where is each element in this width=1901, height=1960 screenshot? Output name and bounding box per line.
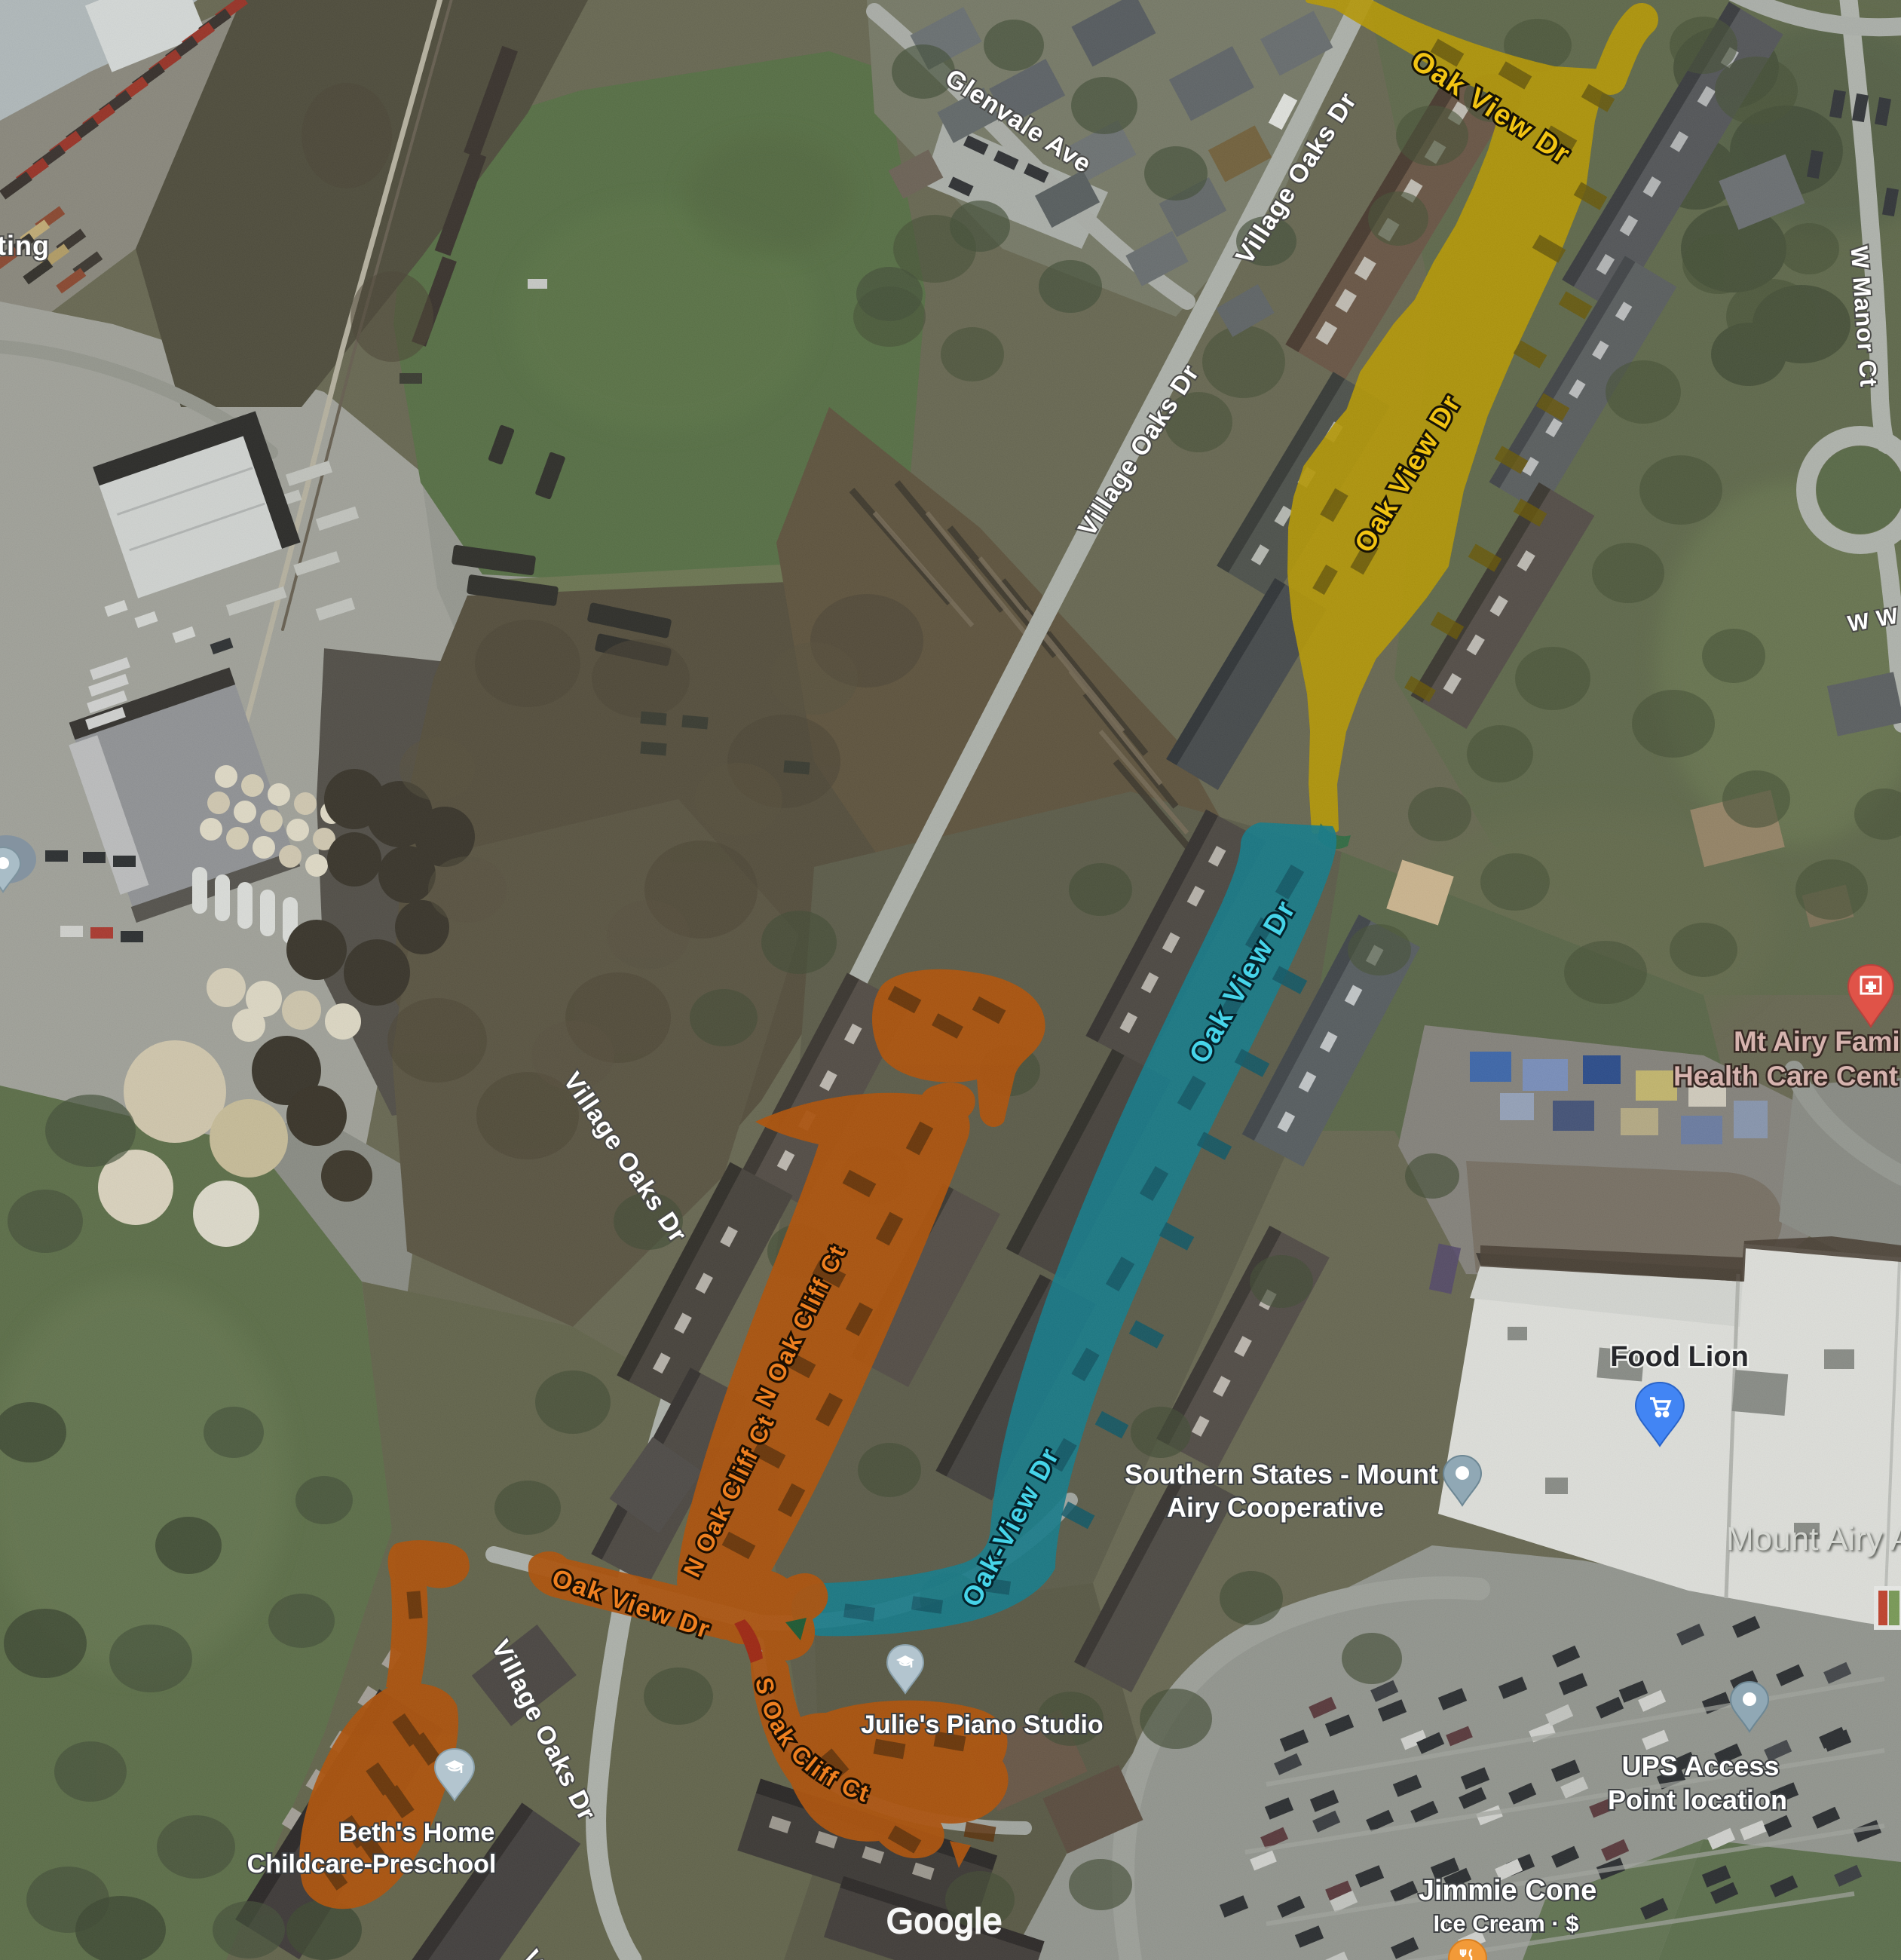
- svg-text:Mount Airy Ac: Mount Airy Ac: [1726, 1521, 1901, 1557]
- svg-text:Southern States - Mount: Southern States - Mount: [1125, 1459, 1438, 1490]
- svg-text:Beth's Home: Beth's Home: [339, 1818, 494, 1847]
- svg-text:ting: ting: [0, 230, 50, 261]
- svg-text:Airy Cooperative: Airy Cooperative: [1167, 1492, 1384, 1523]
- svg-text:Jimmie Cone: Jimmie Cone: [1419, 1875, 1597, 1906]
- svg-text:Ice Cream · $: Ice Cream · $: [1434, 1910, 1579, 1937]
- svg-text:Health Care Cent: Health Care Cent: [1673, 1061, 1898, 1092]
- svg-text:Childcare-Preschool: Childcare-Preschool: [247, 1850, 497, 1879]
- svg-text:Food Lion: Food Lion: [1610, 1341, 1749, 1373]
- svg-text:Google: Google: [886, 1901, 1003, 1940]
- svg-text:Julie's Piano Studio: Julie's Piano Studio: [861, 1710, 1104, 1739]
- svg-text:Mt Airy Fami: Mt Airy Fami: [1734, 1026, 1900, 1057]
- svg-text:Point location: Point location: [1608, 1784, 1787, 1815]
- svg-text:UPS Access: UPS Access: [1622, 1750, 1780, 1781]
